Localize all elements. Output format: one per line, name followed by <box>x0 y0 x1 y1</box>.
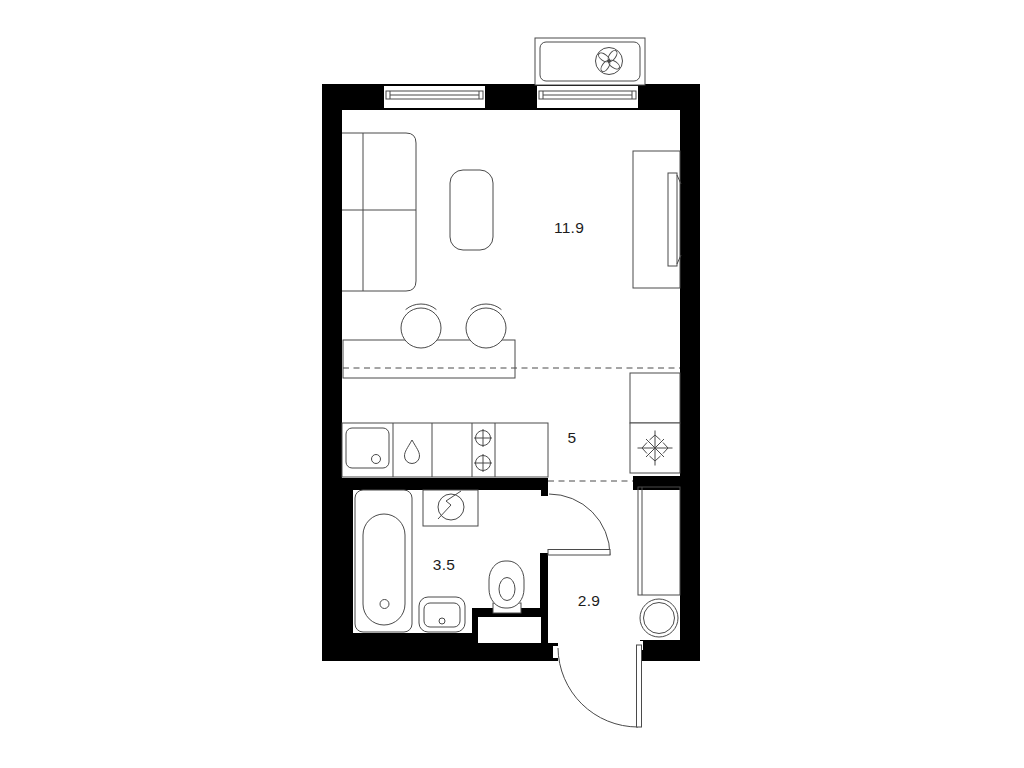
wall-right <box>680 84 700 661</box>
hallway-wardrobe <box>638 487 680 595</box>
bath-door-jamb-stub <box>541 490 548 496</box>
wall-top <box>322 84 700 110</box>
bathroom-area-label: 3.5 <box>433 556 455 573</box>
floor-plan-drawing: 11.9 5 3.5 2.9 <box>0 0 1024 768</box>
door-swing-arc <box>549 494 610 555</box>
washbasin <box>419 597 465 632</box>
hallway-area-label: 2.9 <box>578 592 600 609</box>
sofa <box>342 133 416 291</box>
coffee-table <box>450 170 493 250</box>
duct-shaft-niche <box>478 617 541 643</box>
entrance-door <box>558 645 642 727</box>
living-room-area-label: 11.9 <box>554 219 584 236</box>
fridge <box>630 423 680 473</box>
wall-bottom-right <box>640 640 700 661</box>
window-opening-left <box>384 86 485 108</box>
floor-plan: 11.9 5 3.5 2.9 <box>0 0 1024 768</box>
bathtub <box>355 490 412 632</box>
entry-door-jamb-notch-left <box>553 646 558 658</box>
water-heater <box>640 599 678 637</box>
window-opening-right <box>537 86 638 108</box>
wall-kitchen-bath <box>322 478 548 490</box>
bathroom-door <box>548 494 610 555</box>
ac-unit <box>535 38 645 85</box>
kitchen-cabinet <box>630 373 680 423</box>
wall-left <box>322 84 342 661</box>
tv-stand <box>633 151 681 288</box>
bar-stool <box>466 304 506 348</box>
door-leaf <box>637 645 642 727</box>
wall-fridge-side <box>633 476 680 490</box>
wall-bottom-left <box>322 633 475 661</box>
door-leaf <box>548 550 610 556</box>
toilet <box>489 561 524 613</box>
bar-stool <box>401 304 441 348</box>
kitchen-area-label: 5 <box>568 429 577 446</box>
kitchen-counter <box>342 423 548 477</box>
washing-machine <box>423 490 478 526</box>
door-swing-arc <box>558 648 638 727</box>
wall-bath-hall <box>540 553 548 643</box>
